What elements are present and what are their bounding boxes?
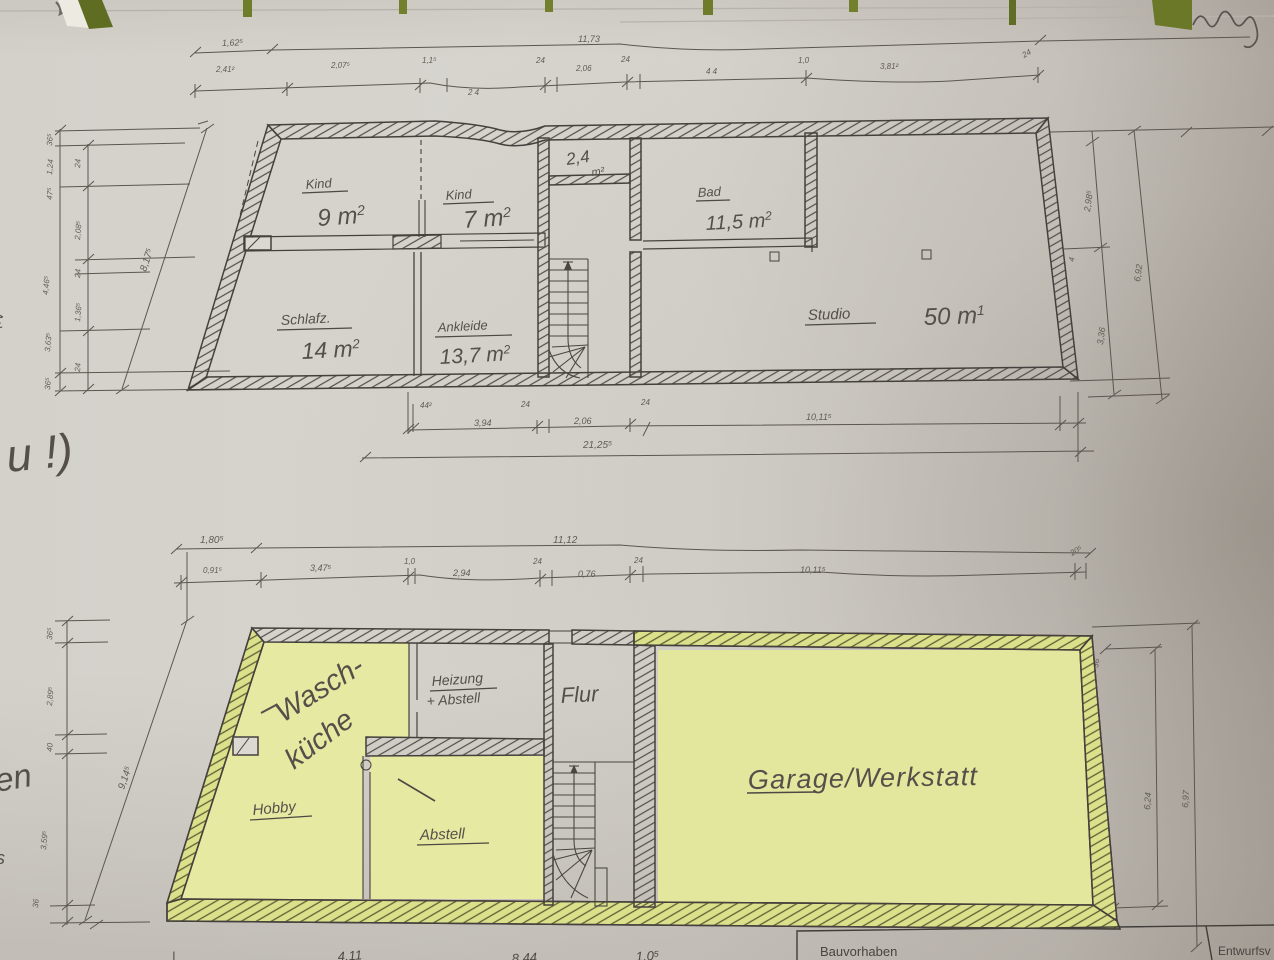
svg-text:Kind: Kind	[445, 186, 473, 203]
svg-text:21,25⁵: 21,25⁵	[582, 440, 612, 451]
svg-text:4,11: 4,11	[337, 947, 362, 960]
svg-text:4 4: 4 4	[706, 67, 718, 76]
svg-text:24: 24	[520, 400, 530, 409]
svg-text:Ankleide: Ankleide	[436, 317, 488, 335]
svg-text:2,08⁵: 2,08⁵	[73, 220, 84, 241]
svg-text:0,76: 0,76	[578, 569, 596, 579]
svg-text:36⁵: 36⁵	[45, 627, 55, 641]
svg-text:Flur: Flur	[560, 681, 601, 708]
svg-text:s: s	[0, 848, 5, 868]
svg-text:24: 24	[633, 556, 643, 565]
svg-text:10,11⁵: 10,11⁵	[800, 565, 826, 575]
svg-text:6,97: 6,97	[1180, 789, 1191, 808]
svg-text:3,47⁵: 3,47⁵	[310, 563, 332, 573]
svg-text:36: 36	[31, 898, 41, 908]
svg-text:4,46⁵: 4,46⁵	[41, 275, 52, 295]
svg-text:10,11⁵: 10,11⁵	[806, 412, 832, 422]
svg-text:1,80⁵: 1,80⁵	[200, 535, 224, 546]
svg-text:11,5 m2: 11,5 m2	[705, 209, 773, 235]
svg-text:2,41²: 2,41²	[215, 65, 235, 74]
svg-text:0,91⁵: 0,91⁵	[203, 566, 223, 575]
svg-text:13,7 m2: 13,7 m2	[439, 342, 511, 369]
svg-text:3,94: 3,94	[474, 418, 492, 428]
svg-text:36⁵: 36⁵	[43, 377, 53, 391]
svg-text:Studio: Studio	[808, 306, 851, 324]
svg-text:m²: m²	[591, 165, 606, 179]
svg-text:3,63⁵: 3,63⁵	[43, 332, 54, 352]
svg-text:2,94: 2,94	[452, 568, 471, 578]
svg-text:Bad: Bad	[697, 184, 722, 200]
svg-text:1,36⁵: 1,36⁵	[73, 302, 84, 322]
svg-text:6,24: 6,24	[1142, 792, 1153, 810]
svg-text:1,24: 1,24	[45, 158, 55, 175]
svg-text:11,73: 11,73	[578, 34, 600, 44]
svg-text:11,12: 11,12	[553, 535, 578, 546]
svg-text:8,44: 8,44	[511, 950, 537, 960]
svg-text:2 4: 2 4	[467, 88, 480, 97]
svg-text:40: 40	[45, 742, 55, 752]
svg-text:44²: 44²	[420, 401, 432, 410]
svg-text:3,59⁵: 3,59⁵	[39, 830, 50, 850]
svg-text:2,06: 2,06	[575, 64, 592, 73]
svg-text:Kind: Kind	[305, 175, 333, 192]
svg-text:Garage/Werkstatt: Garage/Werkstatt	[748, 761, 979, 795]
svg-text:1,0: 1,0	[798, 56, 810, 65]
svg-text:1,62⁵: 1,62⁵	[222, 37, 244, 48]
svg-text:24: 24	[535, 56, 545, 65]
svg-text:50 m1: 50 m1	[923, 302, 985, 331]
svg-text:14 m2: 14 m2	[301, 335, 361, 364]
svg-text:2,06: 2,06	[573, 416, 592, 426]
svg-text:Abstell: Abstell	[419, 825, 466, 844]
svg-text:Entwurfsv: Entwurfsv	[1218, 944, 1271, 958]
svg-text:u !): u !)	[4, 423, 76, 482]
svg-text:24: 24	[640, 398, 650, 407]
svg-text:1,1⁵: 1,1⁵	[422, 56, 437, 65]
svg-text:2,89⁵: 2,89⁵	[45, 686, 56, 707]
svg-text:47⁵: 47⁵	[45, 187, 55, 201]
svg-text:24: 24	[73, 158, 83, 169]
svg-text:24: 24	[73, 268, 83, 279]
svg-text:Schlafz.: Schlafz.	[280, 309, 331, 328]
svg-text:3,81²: 3,81²	[880, 62, 899, 71]
svg-text:24: 24	[532, 557, 542, 566]
svg-text:2,07⁵: 2,07⁵	[330, 61, 351, 70]
svg-text:24: 24	[73, 362, 83, 373]
svg-text:24: 24	[620, 55, 630, 64]
svg-text:Bauvorhaben: Bauvorhaben	[820, 944, 897, 959]
svg-text:1,0⁵: 1,0⁵	[635, 948, 660, 960]
svg-text:2,4: 2,4	[564, 147, 591, 169]
svg-text:1,0: 1,0	[404, 557, 416, 566]
svg-text:36⁵: 36⁵	[45, 133, 55, 147]
svg-text:|: |	[172, 949, 175, 960]
